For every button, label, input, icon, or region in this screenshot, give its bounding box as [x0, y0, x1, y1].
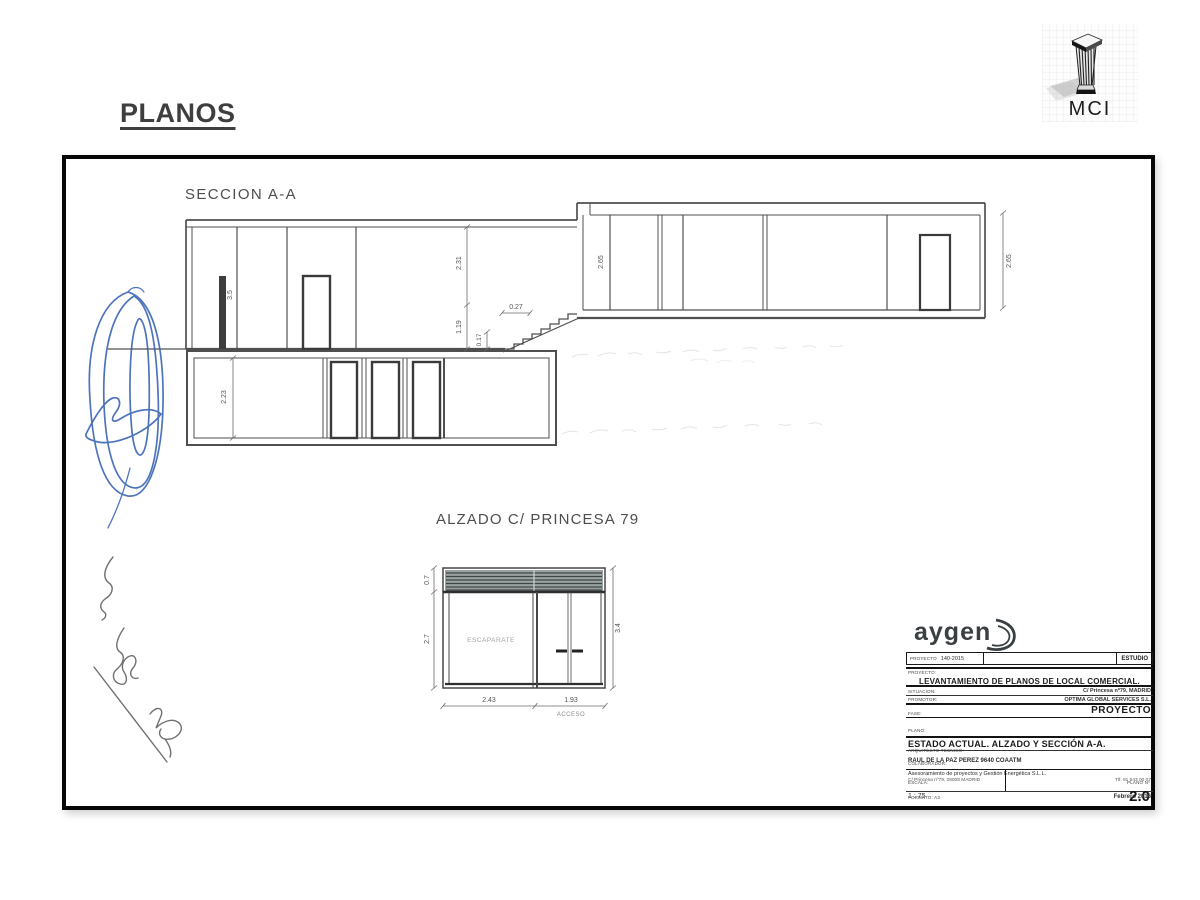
page-title: PLANOS — [120, 98, 236, 129]
titleblock-row-promotor: PROMOTOR: OPTIMA GLOBAL SERVICES S.L. — [906, 696, 1153, 705]
escaparate-label: ESCAPARATE — [467, 637, 515, 644]
titleblock-row-formato: FORMATO: A3 Febrero 2016 — [906, 792, 1153, 802]
proyecto-label: PROYECTO: — [908, 670, 936, 675]
plano-num-label: PLANO Nº — [1127, 780, 1150, 785]
dimension-label: 2.23 — [221, 390, 228, 404]
titleblock-row-plano: PLANO: ESTADO ACTUAL. ALZADO Y SECCIÓN A… — [906, 718, 1153, 738]
dimension-label: 3.5 — [227, 290, 234, 300]
plano-label: PLANO: — [908, 728, 926, 733]
door-frame — [413, 362, 440, 438]
promotor-value: OPTIMA GLOBAL SERVICES S.L. — [1064, 697, 1151, 703]
dimension-label: 2.65 — [598, 255, 605, 269]
promotor-label: PROMOTOR: — [908, 697, 937, 702]
title-block: aygen PROYECTO 140-2015 ESTUDIO PROYECTO… — [906, 618, 1153, 802]
escala-label: ESCALA: — [908, 780, 928, 785]
alzado-dimension-labels: 0.7 2.7 3.4 2.43 1.93 ACCESO — [424, 575, 622, 718]
seccion-dimension-labels: 3.5 2.31 1.19 0.17 0.27 2.65 2.65 2.23 — [221, 254, 1013, 404]
seccion-upper-left-block — [108, 220, 577, 349]
colaborador-label: COLABORADOR: — [908, 761, 947, 766]
titleblock-row-proyecto: PROYECTO: LEVANTAMIENTO DE PLANOS DE LOC… — [906, 667, 1153, 687]
dimension-label: 2.31 — [456, 256, 463, 270]
formato-label: FORMATO: A3 — [908, 795, 940, 800]
door-frame — [331, 362, 357, 438]
alzado-drawing: ESCAPARATE 0.7 2.7 — [424, 566, 622, 719]
situacion-value: C/ Princesa nº79, MADRID — [1083, 688, 1151, 694]
dimension-label: 3.4 — [615, 623, 622, 633]
pencil-signature — [94, 557, 181, 762]
situacion-label: SITUACION: — [908, 689, 936, 694]
seccion-right-block — [577, 203, 985, 318]
proyecto-num-label: PROYECTO — [910, 656, 937, 661]
dimension-label: 2.43 — [482, 697, 496, 704]
door-frame — [372, 362, 399, 438]
titleblock-row-proyecto-num: PROYECTO 140-2015 ESTUDIO — [906, 652, 1153, 665]
proyecto-num-value: 140-2015 — [941, 656, 964, 662]
acceso-label: ACCESO — [557, 712, 585, 718]
estudio-label: ESTUDIO — [1116, 653, 1152, 664]
seccion-basement-block — [187, 351, 556, 445]
fase-label: FASE: — [908, 711, 922, 716]
titleblock-row-tecnico: ARQUITECTO TECNICO: RAUL DE LA PAZ PEREZ… — [906, 738, 1153, 751]
titleblock-row-colaborador: COLABORADOR: Asesoramiento de proyectos … — [906, 751, 1153, 770]
aygen-swoosh-icon — [968, 617, 1020, 653]
alzado-title: ALZADO C/ PRINCESA 79 — [436, 511, 639, 528]
door-frame — [920, 235, 950, 310]
dimension-label: 0.17 — [476, 333, 483, 346]
fase-value: PROYECTO — [1091, 705, 1151, 716]
aygen-logo: aygen — [906, 618, 1153, 650]
titleblock-row-situacion: SITUACION: C/ Princesa nº79, MADRID — [906, 687, 1153, 696]
dimension-label: 2.65 — [1006, 254, 1013, 268]
mci-label: MCI — [1042, 98, 1138, 121]
titleblock-row-escala: ESCALA: 1 : 75 PLANO Nº 2.0 — [906, 770, 1153, 792]
dimension-label: 0.27 — [509, 304, 523, 311]
stairs — [503, 314, 579, 352]
door-frame — [303, 276, 330, 349]
door-leaf — [219, 276, 226, 349]
mci-building-icon — [1042, 24, 1138, 100]
blue-signature — [86, 288, 163, 529]
fecha-value: Febrero 2016 — [1114, 794, 1151, 800]
faint-smudges — [562, 345, 843, 434]
mci-logo: MCI — [1042, 24, 1138, 122]
dimension-label: 0.7 — [424, 575, 431, 585]
proyecto-titulo: LEVANTAMIENTO DE PLANOS DE LOCAL COMERCI… — [906, 669, 1153, 686]
slide: PLANOS MCI — [0, 0, 1200, 900]
seccion-dimension-lines — [230, 211, 1006, 441]
dimension-label: 2.7 — [424, 634, 431, 644]
dimension-label: 1.19 — [456, 320, 463, 334]
dimension-label: 1.93 — [564, 697, 578, 704]
seccion-title: SECCION A-A — [185, 186, 297, 203]
titleblock-row-fase: FASE: PROYECTO — [906, 705, 1153, 718]
